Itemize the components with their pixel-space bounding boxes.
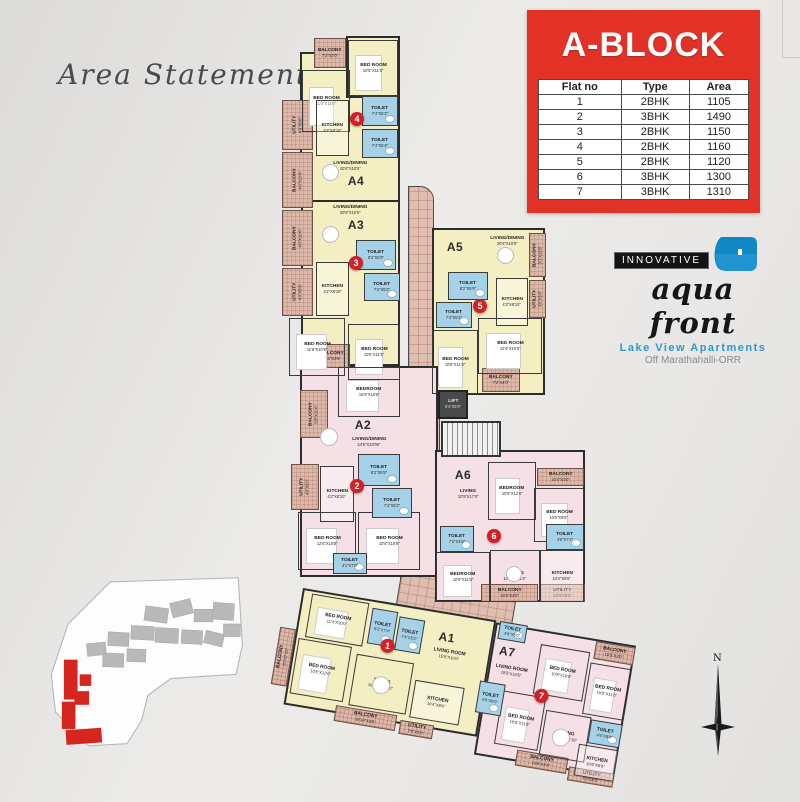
room-label: LIVING/DINING20'6"X10'6" bbox=[308, 158, 392, 174]
north-compass: N bbox=[700, 650, 736, 772]
label: BALCONY10'10"X3'5" bbox=[349, 710, 381, 727]
label: BED ROOM12'6"X10'8" bbox=[311, 535, 344, 547]
label: BED ROOM10'5"X9'6" bbox=[543, 509, 576, 521]
label: TOILET8'2"X5'9" bbox=[456, 280, 480, 292]
label: LIVING/DINING20'6"X10'6" bbox=[329, 204, 372, 216]
room-kitchen: KITCHEN4'2"X8'10" bbox=[316, 100, 349, 156]
label: TOILET7'4"X5'2" bbox=[397, 627, 423, 643]
label: BALCONY7'2"X3'0" bbox=[315, 47, 345, 59]
label: TOILET7'4"X5'2" bbox=[380, 497, 404, 509]
balcony-area: UTILITY4'0"X5'0" bbox=[291, 464, 319, 510]
room-toilet: TOILET8'2"X5'9" bbox=[358, 454, 400, 486]
label: KITCHEN4'2"X8'10" bbox=[498, 296, 525, 308]
label: TOILET4'1"X7'9" bbox=[338, 557, 362, 569]
room-bedroom: BEDROOM15'5"X10'6" bbox=[338, 367, 400, 417]
room-toilet: TOILET7'4"X5'2" bbox=[436, 302, 472, 328]
room-toilet: TOILET4'6"X8'0" bbox=[475, 681, 506, 717]
label: LIVING/DINING20'6"X10'6" bbox=[329, 160, 372, 172]
staircase bbox=[441, 421, 501, 457]
label: BED ROOM10'5"X11'5" bbox=[590, 683, 625, 700]
label: BED ROOM12'6"X10'6" bbox=[494, 340, 527, 352]
label: TOILET7'4"X5'2" bbox=[442, 309, 466, 321]
room-label: LIVING/DINING24'5"X10'06" bbox=[326, 434, 412, 450]
room-bedroom: BEDROOM10'5"X11'6" bbox=[436, 552, 490, 602]
label: BED ROOM10'5"X12'0" bbox=[303, 661, 338, 678]
room-toilet: TOILET4'1"X7'9" bbox=[333, 553, 367, 574]
compass-label: N bbox=[713, 653, 722, 664]
unit-label: A6 bbox=[448, 468, 478, 482]
dining-table-icon bbox=[506, 566, 522, 582]
label: LIVING/DINING20'6"X10'9" bbox=[486, 235, 529, 247]
label: TOILET4'6"X5'0" bbox=[500, 624, 526, 640]
room-toilet: TOILET4'6"X8'0" bbox=[587, 719, 623, 748]
label: BALCONY5'8"X10'6" bbox=[308, 399, 320, 429]
label: UTILITY7'0"X5'0" bbox=[403, 722, 429, 738]
label: LIVING/DINING24'5"X10'06" bbox=[348, 436, 391, 448]
label: KITCHEN10'4"X8'6" bbox=[422, 694, 451, 711]
label: BED ROOM10'5"X11'5" bbox=[357, 62, 390, 74]
lift: LIFT5'4"X5'9" bbox=[438, 390, 468, 419]
label: TOILET7'4"X5'2" bbox=[370, 281, 394, 293]
room-bedroom: BED ROOM10'5"X12'0" bbox=[289, 638, 352, 702]
room-label: LIVING/DINING20'6"X10'6" bbox=[308, 202, 392, 218]
label: TOILET8'2"X5'9" bbox=[364, 249, 388, 261]
room-bedroom: BED ROOM11'6"X10'9" bbox=[289, 318, 345, 376]
room-toilet: TOILET4'6"X7'4" bbox=[546, 524, 584, 550]
balcony-area: BALCONY7'2"X3'0" bbox=[314, 38, 346, 68]
dining-table-icon bbox=[322, 226, 339, 243]
unit-label: A5 bbox=[440, 240, 470, 254]
label: TOILET5'2"X7'4" bbox=[370, 620, 396, 636]
label: TOILET8'2"X5'9" bbox=[367, 464, 391, 476]
label: TOILET4'6"X8'0" bbox=[592, 726, 618, 742]
room-bedroom: BEDROOM10'5"X12'0" bbox=[488, 462, 536, 520]
unit-label: A2 bbox=[348, 418, 378, 432]
balcony-area: BALCONY10'4"X3'0" bbox=[537, 468, 584, 486]
balcony-area: UTILITY3'0"X5'6" bbox=[529, 280, 546, 318]
room-kitchen: KITCHEN10'5"X8'6" bbox=[574, 744, 619, 782]
room-label: LIVING10'5"X17'0" bbox=[442, 486, 494, 502]
room-kitchen: KITCHEN4'2"X8'10" bbox=[316, 262, 349, 316]
unit-label: A4 bbox=[341, 174, 371, 188]
flat-number-badge: 3 bbox=[349, 256, 363, 270]
label: KITCHEN4'2"X8'10" bbox=[319, 283, 346, 295]
room-kitchen: KITCHEN10'4"X8'6" bbox=[409, 680, 465, 726]
label: BALCONY10'5"X3'0" bbox=[599, 645, 630, 662]
label: BED ROOM10'5"X11'5" bbox=[358, 346, 391, 358]
label: BEDROOM10'5"X12'0" bbox=[496, 485, 527, 497]
label: BED ROOM10'5"X10'5" bbox=[544, 664, 579, 681]
room-bedroom: BED ROOM11'4"X10'0" bbox=[305, 594, 369, 647]
label: KITCHEN10'4"X8'6" bbox=[548, 570, 575, 582]
label: BALCONY4'0"X10'6" bbox=[291, 223, 303, 253]
room-bedroom: BED ROOM10'8"X11'5" bbox=[432, 330, 478, 394]
room-toilet: TOILET7'4"X5'2" bbox=[372, 488, 412, 518]
label: LIFT5'4"X5'9" bbox=[441, 398, 465, 410]
label: BED ROOM10'5"X11'5" bbox=[503, 712, 538, 729]
label: UTILITY4'0"X5'0" bbox=[299, 475, 311, 499]
label: TOILET7'4"X5'2" bbox=[368, 105, 392, 117]
unit-label: A3 bbox=[341, 218, 371, 232]
room-kitchen: KITCHEN10'4"X8'6" bbox=[540, 550, 584, 602]
label: LIVING10'5"X17'0" bbox=[453, 488, 484, 500]
label: TOILET7'2"X4'6" bbox=[445, 533, 469, 545]
site-key-plan bbox=[45, 576, 255, 758]
label: BED ROOM10'8"X11'5" bbox=[439, 356, 472, 368]
dining-table-icon bbox=[497, 247, 514, 264]
label: BEDROOM10'5"X11'6" bbox=[447, 571, 478, 583]
label: UTILITY4'0"X5'6" bbox=[291, 280, 303, 304]
label: BED ROOM11'4"X10'0" bbox=[320, 611, 355, 628]
label: BED ROOM10'8"X10'9" bbox=[373, 535, 406, 547]
room-bedroom: BED ROOM10'8"X10'9" bbox=[358, 512, 420, 570]
label: UTILITY3'0"X5'6" bbox=[531, 287, 543, 311]
label: KITCHEN10'5"X8'6" bbox=[582, 755, 611, 772]
label: BALCONY4'0"X10'6" bbox=[291, 165, 303, 195]
label: BED ROOM11'6"X10'9" bbox=[301, 341, 334, 353]
room-label: LIVING/DINING20'6"X10'9" bbox=[470, 233, 544, 249]
room-toilet: TOILET7'4"X5'2" bbox=[362, 96, 398, 126]
label: TOILET4'6"X7'4" bbox=[553, 531, 577, 543]
label: BEDROOM15'5"X10'6" bbox=[353, 386, 384, 398]
label: TOILET7'4"X5'4" bbox=[368, 137, 392, 149]
flat-number-badge: 6 bbox=[487, 529, 501, 543]
label: KITCHEN4'2"X8'10" bbox=[319, 122, 346, 134]
label: TOILET4'6"X8'0" bbox=[478, 690, 504, 706]
room-toilet: TOILET7'4"X5'2" bbox=[364, 273, 400, 301]
room-toilet: TOILET7'4"X5'4" bbox=[362, 129, 398, 158]
room-bedroom: BED ROOM10'5"X11'5" bbox=[348, 40, 398, 96]
flat-number-badge: 4 bbox=[350, 112, 364, 126]
label: BALCONY7'2"X4'0" bbox=[486, 374, 516, 386]
room-toilet: TOILET7'2"X4'6" bbox=[440, 526, 474, 552]
label: BALCONY10'4"X3'0" bbox=[546, 471, 576, 483]
balcony-area: BALCONY4'0"X10'6" bbox=[282, 210, 313, 266]
label: KITCHEN4'2"X8'10" bbox=[323, 488, 350, 500]
label: BALCONY3'0"X7'10" bbox=[275, 641, 292, 672]
flat-number-badge: 2 bbox=[350, 479, 364, 493]
flat-number-badge: 5 bbox=[473, 299, 487, 313]
room-bedroom: BED ROOM10'5"X11'5" bbox=[582, 662, 632, 720]
balcony-area: UTILITY4'0"X5'6" bbox=[282, 268, 313, 316]
room-toilet: TOILET8'2"X5'9" bbox=[448, 272, 488, 300]
room-bedroom: BED ROOM12'6"X10'6" bbox=[478, 318, 542, 374]
